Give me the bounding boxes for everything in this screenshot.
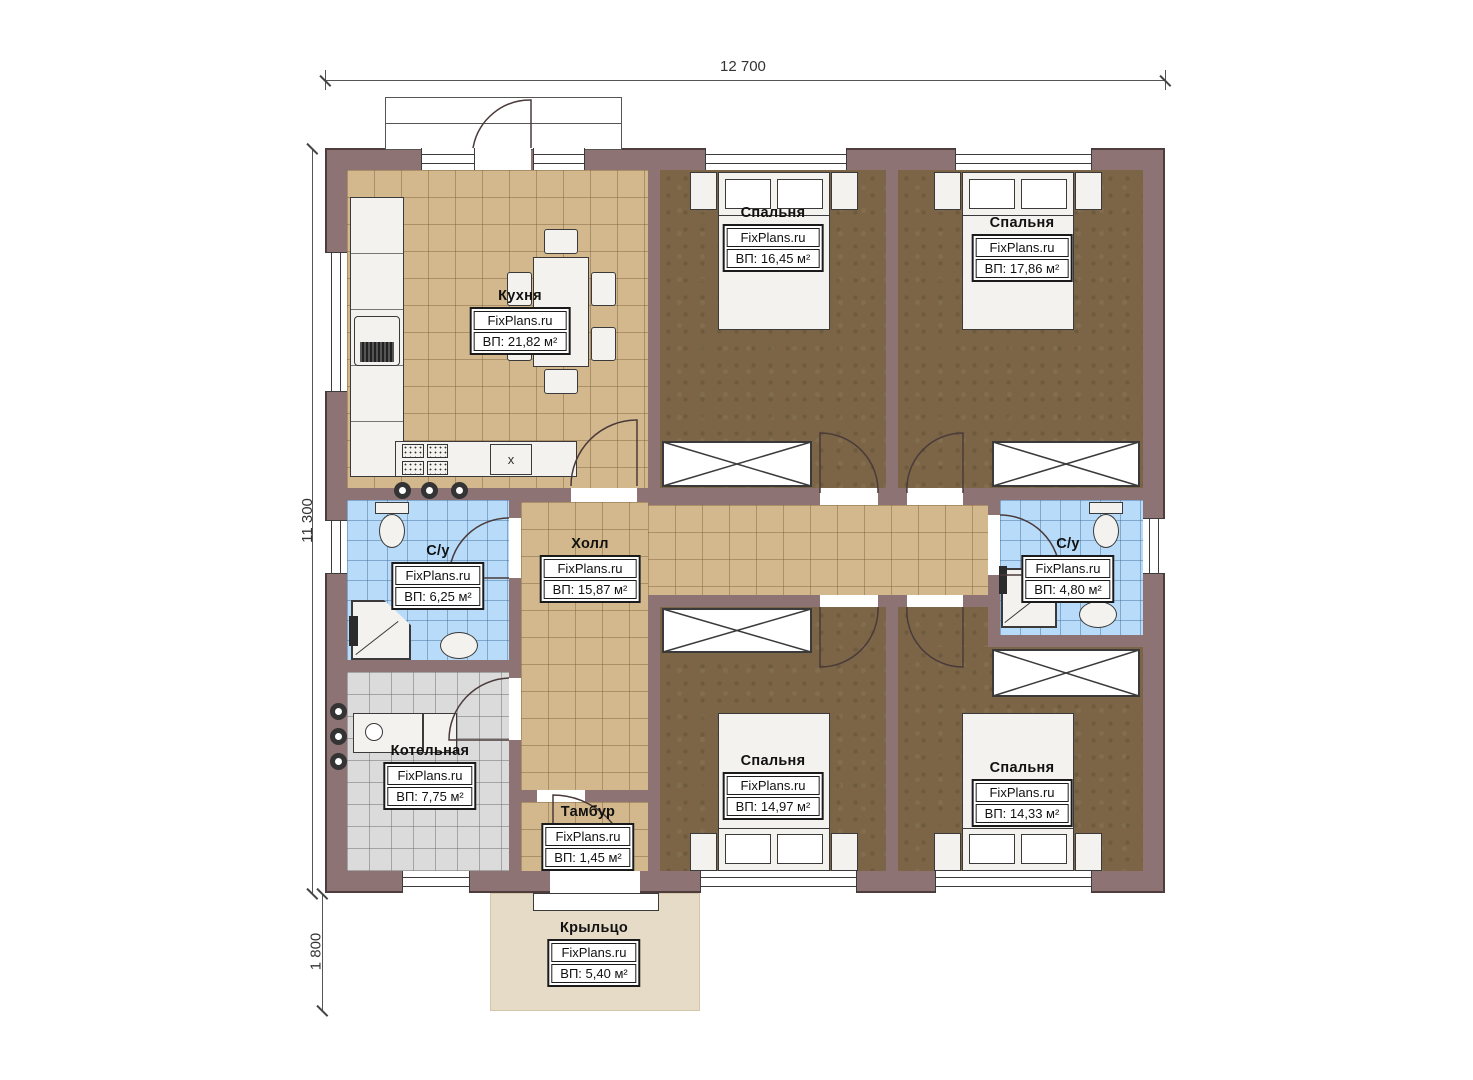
room-info-box: FixPlans.ru ВП: 14,97 м²	[723, 772, 824, 820]
room-area: ВП: 17,86 м²	[976, 259, 1069, 278]
door-arc	[449, 678, 509, 740]
door-arc	[820, 433, 878, 493]
room-area: ВП: 21,82 м²	[474, 332, 567, 351]
fixplans-watermark: FixPlans.ru	[387, 766, 472, 785]
dimension-line-top	[325, 80, 1165, 81]
door-arc	[907, 607, 963, 667]
door-arc	[820, 607, 878, 667]
room-area: ВП: 6,25 м²	[395, 587, 480, 606]
room-name: Кухня	[498, 288, 542, 304]
fixplans-watermark: FixPlans.ru	[395, 566, 480, 585]
room-label-hall: Холл FixPlans.ru ВП: 15,87 м²	[540, 536, 641, 603]
room-label-bedroom-tl: Спальня FixPlans.ru ВП: 16,45 м²	[723, 205, 824, 272]
fixplans-watermark: FixPlans.ru	[976, 238, 1069, 257]
room-label-kitchen: Кухня FixPlans.ru ВП: 21,82 м²	[470, 288, 571, 355]
room-area: ВП: 14,33 м²	[976, 804, 1069, 823]
room-area: ВП: 7,75 м²	[387, 787, 472, 806]
room-name: Спальня	[741, 205, 806, 221]
fixplans-watermark: FixPlans.ru	[727, 776, 820, 795]
room-name: Котельная	[391, 743, 470, 759]
dimension-label-porch: 1 800	[307, 933, 324, 971]
room-info-box: FixPlans.ru ВП: 4,80 м²	[1021, 555, 1114, 603]
room-label-bathroom-right: С/у FixPlans.ru ВП: 4,80 м²	[1021, 536, 1114, 603]
room-label-porch: Крыльцо FixPlans.ru ВП: 5,40 м²	[547, 920, 640, 987]
room-name: Спальня	[990, 215, 1055, 231]
door-arc	[473, 100, 531, 148]
room-info-box: FixPlans.ru ВП: 7,75 м²	[383, 762, 476, 810]
fixplans-watermark: FixPlans.ru	[545, 827, 630, 846]
door-arcs-layer	[0, 0, 1473, 1080]
room-label-bedroom-br: Спальня FixPlans.ru ВП: 14,33 м²	[972, 760, 1073, 827]
room-info-box: FixPlans.ru ВП: 1,45 м²	[541, 823, 634, 871]
room-area: ВП: 1,45 м²	[545, 848, 630, 867]
fixplans-watermark: FixPlans.ru	[474, 311, 567, 330]
room-info-box: FixPlans.ru ВП: 15,87 м²	[540, 555, 641, 603]
room-name: С/у	[1056, 536, 1079, 552]
door-arc	[907, 433, 963, 493]
fixplans-watermark: FixPlans.ru	[544, 559, 637, 578]
fixplans-watermark: FixPlans.ru	[551, 943, 636, 962]
room-area: ВП: 16,45 м²	[727, 249, 820, 268]
room-area: ВП: 4,80 м²	[1025, 580, 1110, 599]
room-info-box: FixPlans.ru ВП: 6,25 м²	[391, 562, 484, 610]
room-info-box: FixPlans.ru ВП: 14,33 м²	[972, 779, 1073, 827]
room-name: Тамбур	[561, 804, 615, 820]
room-name: С/у	[426, 543, 449, 559]
room-name: Спальня	[741, 753, 806, 769]
room-area: ВП: 5,40 м²	[551, 964, 636, 983]
room-area: ВП: 14,97 м²	[727, 797, 820, 816]
room-name: Крыльцо	[560, 920, 628, 936]
fixplans-watermark: FixPlans.ru	[1025, 559, 1110, 578]
floor-plan: x	[0, 0, 1473, 1080]
room-area: ВП: 15,87 м²	[544, 580, 637, 599]
room-label-bathroom-left: С/у FixPlans.ru ВП: 6,25 м²	[391, 543, 484, 610]
fixplans-watermark: FixPlans.ru	[976, 783, 1069, 802]
door-arc	[571, 420, 637, 486]
room-info-box: FixPlans.ru ВП: 17,86 м²	[972, 234, 1073, 282]
room-label-bedroom-tr: Спальня FixPlans.ru ВП: 17,86 м²	[972, 215, 1073, 282]
room-info-box: FixPlans.ru ВП: 5,40 м²	[547, 939, 640, 987]
dimension-label-width: 12 700	[720, 58, 766, 75]
room-name: Холл	[571, 536, 609, 552]
room-info-box: FixPlans.ru ВП: 16,45 м²	[723, 224, 824, 272]
dimension-label-height: 11 300	[299, 498, 316, 543]
room-label-bedroom-bl: Спальня FixPlans.ru ВП: 14,97 м²	[723, 753, 824, 820]
room-name: Спальня	[990, 760, 1055, 776]
fixplans-watermark: FixPlans.ru	[727, 228, 820, 247]
room-label-boiler: Котельная FixPlans.ru ВП: 7,75 м²	[383, 743, 476, 810]
room-info-box: FixPlans.ru ВП: 21,82 м²	[470, 307, 571, 355]
room-label-vestibule: Тамбур FixPlans.ru ВП: 1,45 м²	[541, 804, 634, 871]
